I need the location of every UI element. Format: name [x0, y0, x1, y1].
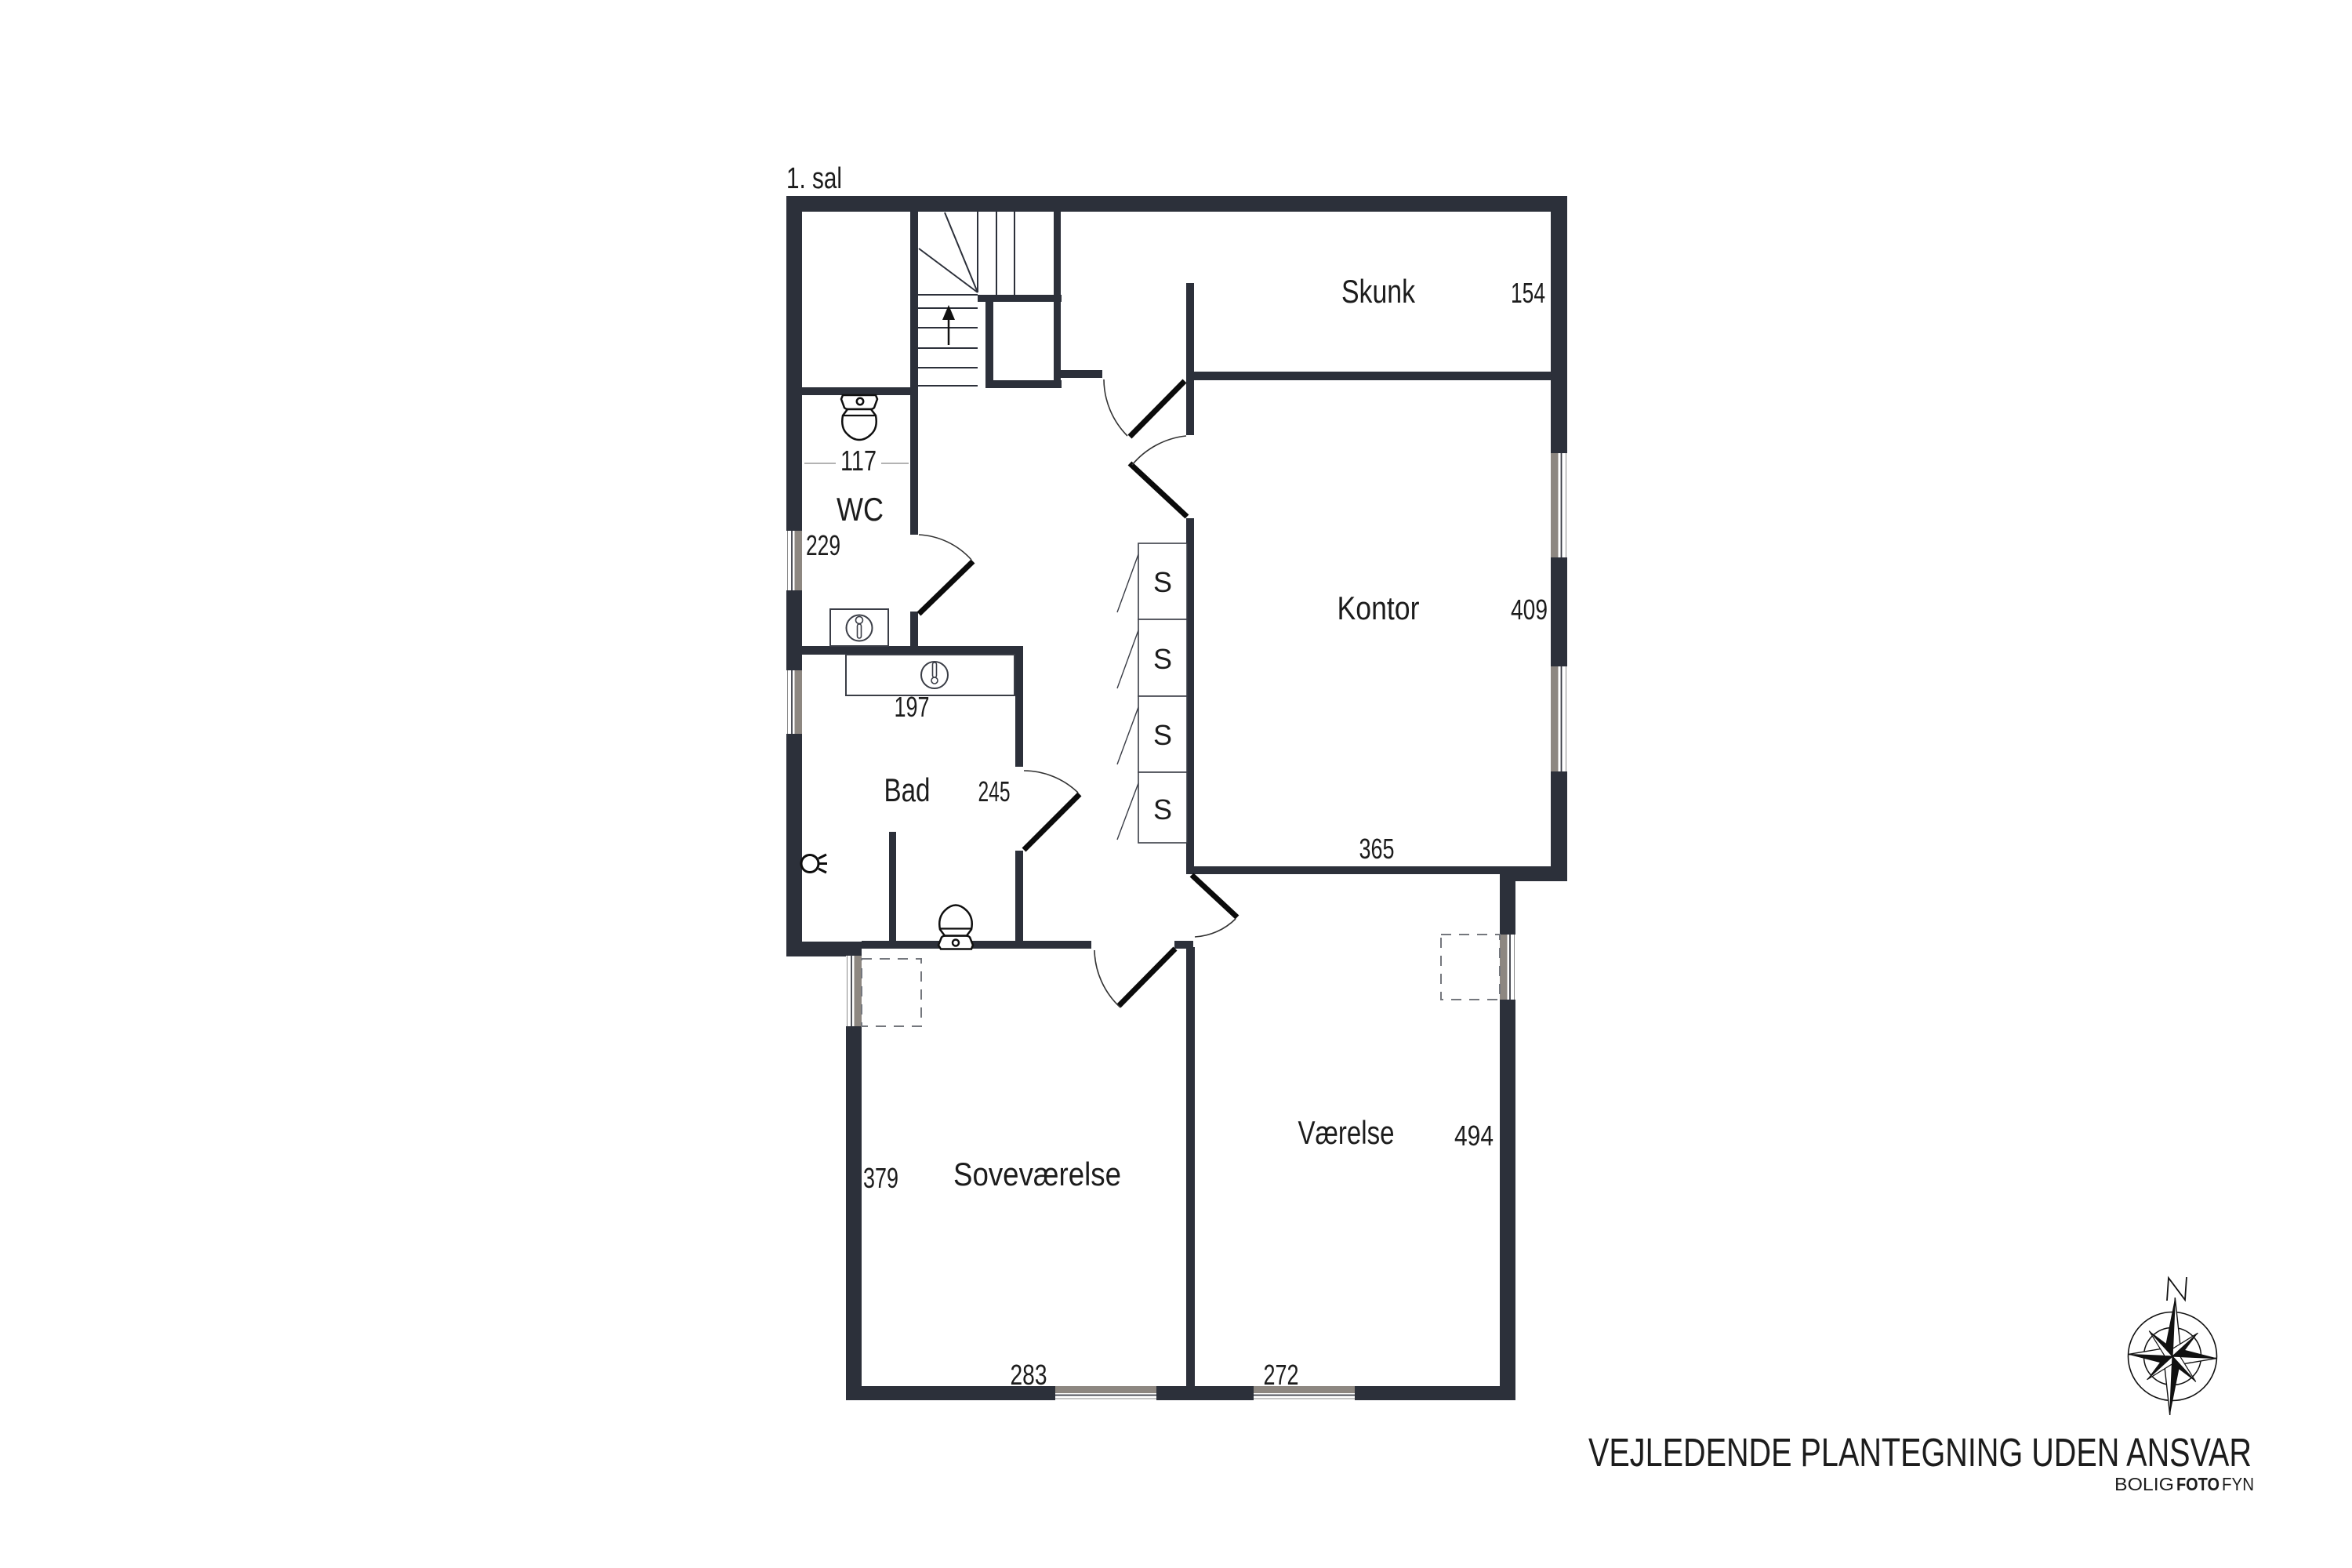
svg-text:Skunk: Skunk	[1341, 273, 1416, 310]
svg-text:WC: WC	[837, 491, 884, 528]
svg-text:S: S	[1153, 793, 1172, 826]
svg-text:S: S	[1153, 566, 1172, 598]
svg-text:245: 245	[978, 775, 1011, 808]
svg-text:117: 117	[840, 445, 877, 477]
svg-text:494: 494	[1454, 1120, 1494, 1152]
svg-text:Kontor: Kontor	[1338, 590, 1420, 626]
svg-text:Værelse: Værelse	[1298, 1114, 1395, 1151]
svg-text:409: 409	[1511, 593, 1548, 626]
svg-text:Soveværelse: Soveværelse	[953, 1156, 1121, 1192]
svg-text:229: 229	[806, 529, 840, 561]
svg-text:FYN: FYN	[2222, 1474, 2254, 1494]
svg-text:283: 283	[1011, 1359, 1047, 1391]
svg-text:VEJLEDENDE PLANTEGNING UDEN AN: VEJLEDENDE PLANTEGNING UDEN ANSVAR	[1588, 1430, 2252, 1475]
svg-text:Bad: Bad	[884, 771, 931, 808]
svg-text:272: 272	[1264, 1359, 1299, 1391]
svg-text:379: 379	[863, 1162, 898, 1194]
svg-text:S: S	[1153, 643, 1172, 675]
svg-text:365: 365	[1359, 833, 1395, 865]
svg-text:FOTO: FOTO	[2176, 1474, 2220, 1494]
svg-text:197: 197	[895, 691, 930, 723]
svg-text:1. sal: 1. sal	[786, 162, 842, 195]
svg-text:BOLIG: BOLIG	[2114, 1474, 2174, 1494]
svg-text:S: S	[1153, 719, 1172, 751]
svg-text:154: 154	[1511, 277, 1545, 309]
